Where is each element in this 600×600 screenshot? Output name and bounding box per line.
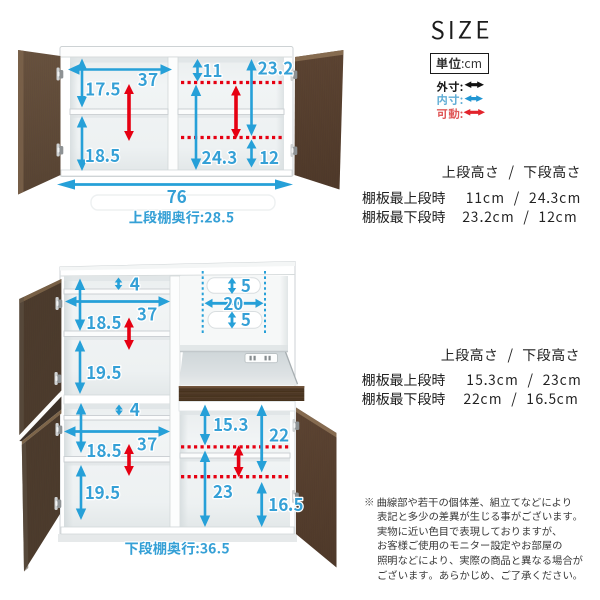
svg-text:37: 37 (138, 66, 158, 91)
svg-text:15.3: 15.3 (213, 411, 249, 436)
svg-text:76: 76 (166, 183, 186, 208)
svg-text:24.3: 24.3 (202, 144, 238, 169)
svg-text:11: 11 (202, 57, 222, 82)
svg-text:19.5: 19.5 (86, 359, 122, 384)
svg-text:18.5: 18.5 (85, 142, 121, 167)
svg-text:上段棚奥行:28.5: 上段棚奥行:28.5 (129, 208, 234, 228)
svg-text:4: 4 (130, 396, 140, 421)
svg-text:16.5: 16.5 (268, 491, 304, 516)
svg-text:23: 23 (213, 478, 233, 503)
svg-text:12: 12 (259, 144, 279, 169)
svg-text:4: 4 (130, 270, 140, 295)
svg-text:下段棚奥行:36.5: 下段棚奥行:36.5 (124, 539, 229, 559)
svg-text:5: 5 (241, 306, 251, 331)
svg-text:18.5: 18.5 (86, 309, 122, 334)
svg-text:37: 37 (137, 301, 157, 326)
svg-text:17.5: 17.5 (85, 76, 121, 101)
svg-text:22: 22 (269, 421, 289, 446)
svg-text:23.2: 23.2 (258, 55, 294, 80)
svg-text:19.5: 19.5 (85, 479, 121, 504)
svg-text:37: 37 (137, 430, 157, 455)
svg-text:18.5: 18.5 (86, 437, 122, 462)
